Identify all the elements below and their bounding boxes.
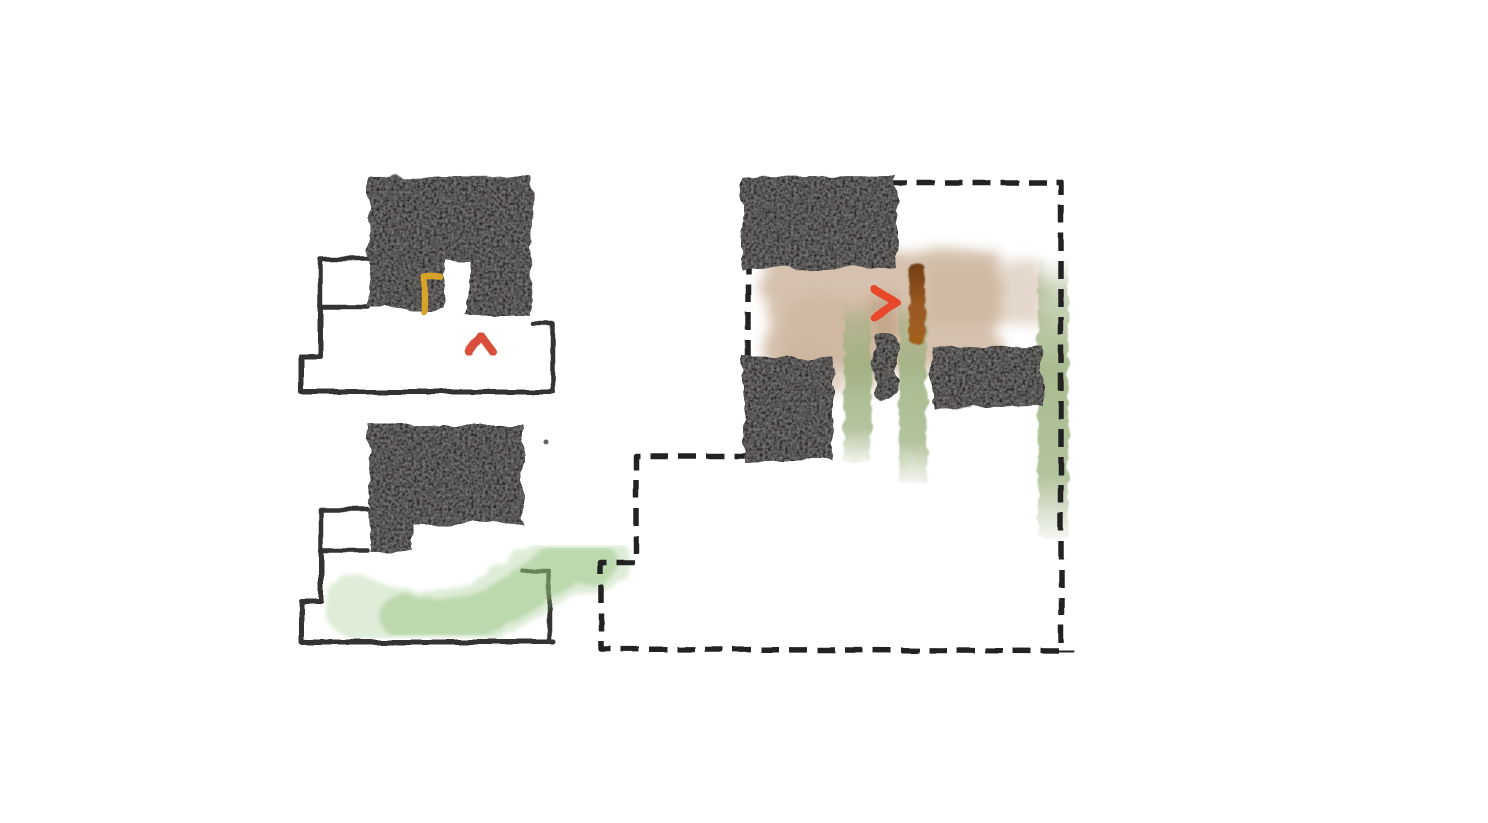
- charcoal-seam-vertical: [456, 180, 457, 252]
- brown-stroke: [909, 263, 925, 345]
- charcoal-block-mid-left: [743, 357, 833, 461]
- green-stroke-left: [844, 303, 871, 463]
- massing-sketch-step-2: [301, 424, 598, 642]
- tan-wash-right-streaks: [928, 263, 1046, 325]
- charcoal-mass: [369, 424, 523, 551]
- outline-left-step: [301, 307, 553, 392]
- massing-sketch-step-1: [301, 176, 563, 392]
- sketch-svg: [0, 0, 1488, 823]
- boundary-tick-bottom-right-cross: [1048, 651, 1072, 652]
- plan-diagram-right: [601, 170, 1072, 665]
- outline-upper-notch: [321, 510, 368, 551]
- outline-right-bump: [533, 324, 553, 390]
- outline-upper-notch: [320, 259, 368, 307]
- charcoal-mass: [369, 176, 532, 318]
- speck-dot: [544, 440, 549, 445]
- charcoal-block-right: [932, 346, 1043, 407]
- charcoal-block-top-left: [741, 176, 896, 269]
- sketch-canvas: [0, 0, 1488, 823]
- charcoal-block-small: [874, 333, 897, 401]
